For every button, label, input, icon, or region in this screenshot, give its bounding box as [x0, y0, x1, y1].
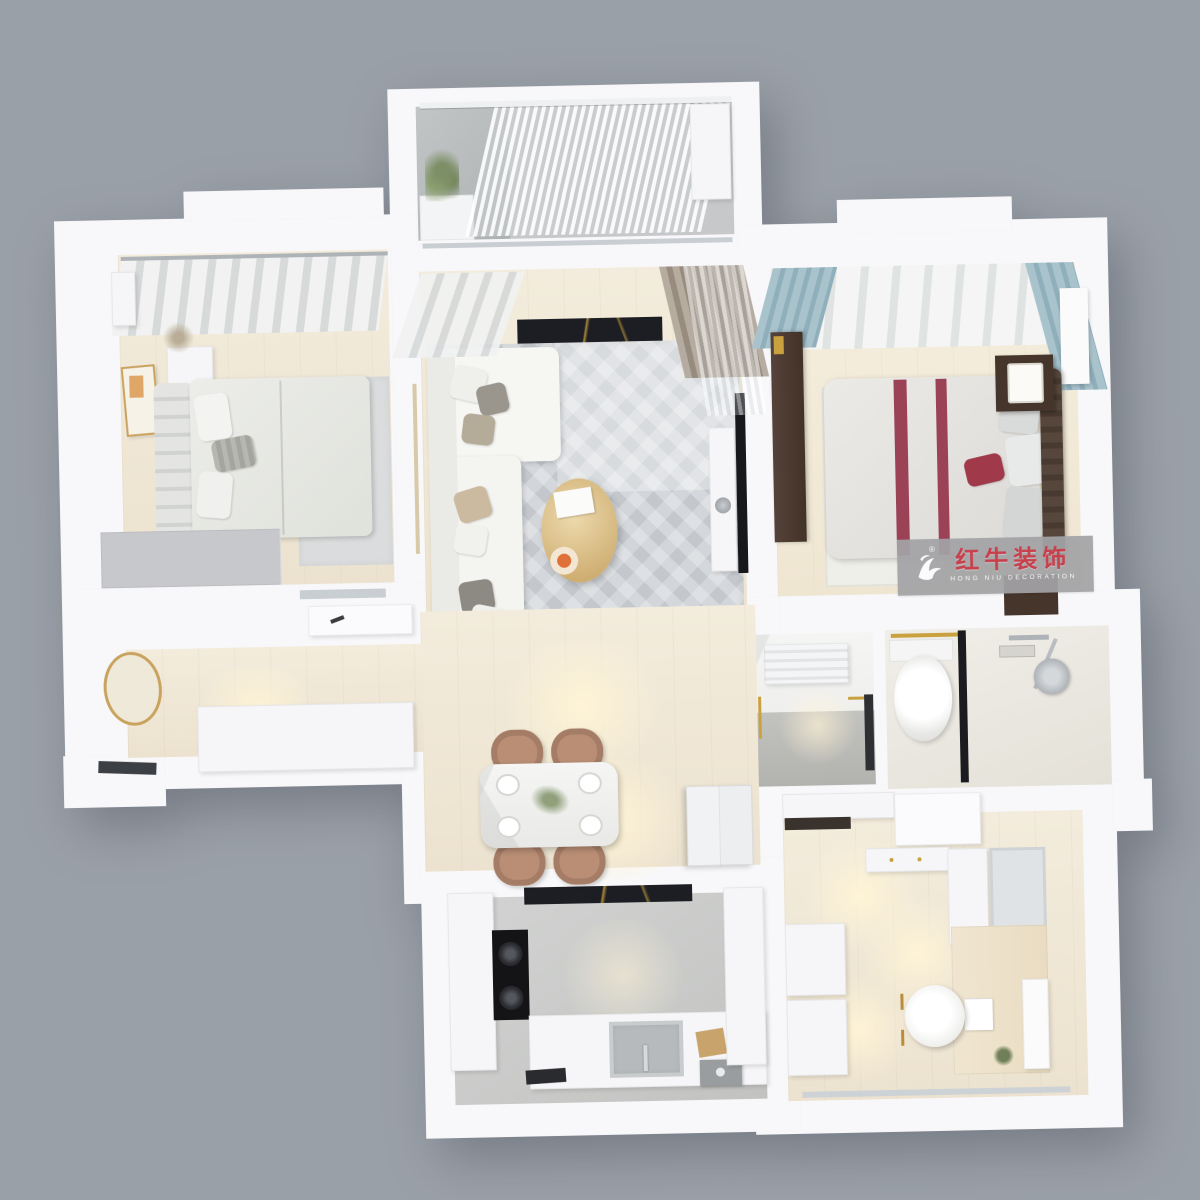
laundry-cement-floor [755, 710, 876, 786]
range-hood-strip [524, 884, 692, 905]
wall-study-step [1112, 778, 1153, 831]
study-top-cabinet [782, 792, 895, 820]
living-sofa [425, 347, 571, 646]
cutting-board [695, 1028, 727, 1058]
registered-mark: ® [929, 545, 935, 554]
floor-plan-render: ® 红牛装饰 HONG NIU DECORATION [0, 0, 1200, 1200]
cooktop [492, 930, 530, 1021]
bedroom2-ac-panel [111, 272, 136, 326]
brand-name-chinese: 红牛装饰 [955, 547, 1071, 573]
nightstand-tray [1007, 363, 1044, 404]
ledge-top-right [837, 196, 1013, 235]
kitchen-left-cabinets [447, 892, 497, 1071]
laundry-door-slit [864, 694, 875, 770]
balcony-plant [425, 149, 460, 202]
sofa-pillow [453, 522, 489, 557]
bed-pillow [196, 471, 234, 520]
bedroom2-wardrobe [100, 529, 281, 589]
bed-pillow [193, 392, 233, 442]
bath-heater-unit [764, 643, 849, 685]
study-door [894, 792, 981, 846]
bedroom2-curtains [112, 254, 388, 336]
master-pillow [1002, 485, 1047, 541]
desk-side-panel [1022, 979, 1050, 1070]
bedroom2-door-sill [300, 588, 386, 599]
kitchen-tray [526, 1068, 567, 1085]
bedroom2-frame-art [129, 376, 143, 398]
chair-gold-leg [900, 994, 903, 1010]
study-wardrobe [786, 999, 848, 1076]
burner [499, 986, 523, 1010]
bedroom2-nightstand-plant [158, 322, 199, 353]
ledge-top-left [183, 187, 384, 221]
bedroom2-bed [153, 373, 374, 544]
shoe-cabinet [197, 702, 414, 773]
master-wardrobe-decor [774, 336, 784, 354]
apartment-plan: ® 红牛装饰 HONG NIU DECORATION [0, 0, 1200, 1200]
brand-name-english: HONG NIU DECORATION [950, 574, 1077, 583]
desk-papers [964, 998, 993, 1031]
balcony-cabinet [690, 103, 732, 200]
watermark-band: ® 红牛装饰 HONG NIU DECORATION [897, 536, 1094, 596]
study-shelf-dark [785, 817, 851, 830]
cabinet-gold-knob [889, 858, 893, 862]
shower-drain [999, 645, 1035, 658]
cabinet-gold-knob [917, 857, 921, 861]
fridge [686, 785, 754, 866]
kitchen-right-cabinets [723, 887, 767, 1066]
burner [498, 942, 522, 966]
sink-faucet [643, 1045, 648, 1071]
entry-door [308, 604, 413, 636]
shower-faucet [1009, 635, 1049, 641]
ledge-window-slit [98, 761, 156, 775]
study-wardrobe [785, 923, 846, 996]
study-floating-cabinet [865, 847, 949, 873]
master-wardrobe [770, 332, 806, 543]
watermark-text: 红牛装饰 HONG NIU DECORATION [950, 547, 1077, 583]
chair-gold-leg [901, 1030, 904, 1046]
sofa-pillow [461, 413, 496, 447]
bull-logo-icon [914, 551, 945, 584]
